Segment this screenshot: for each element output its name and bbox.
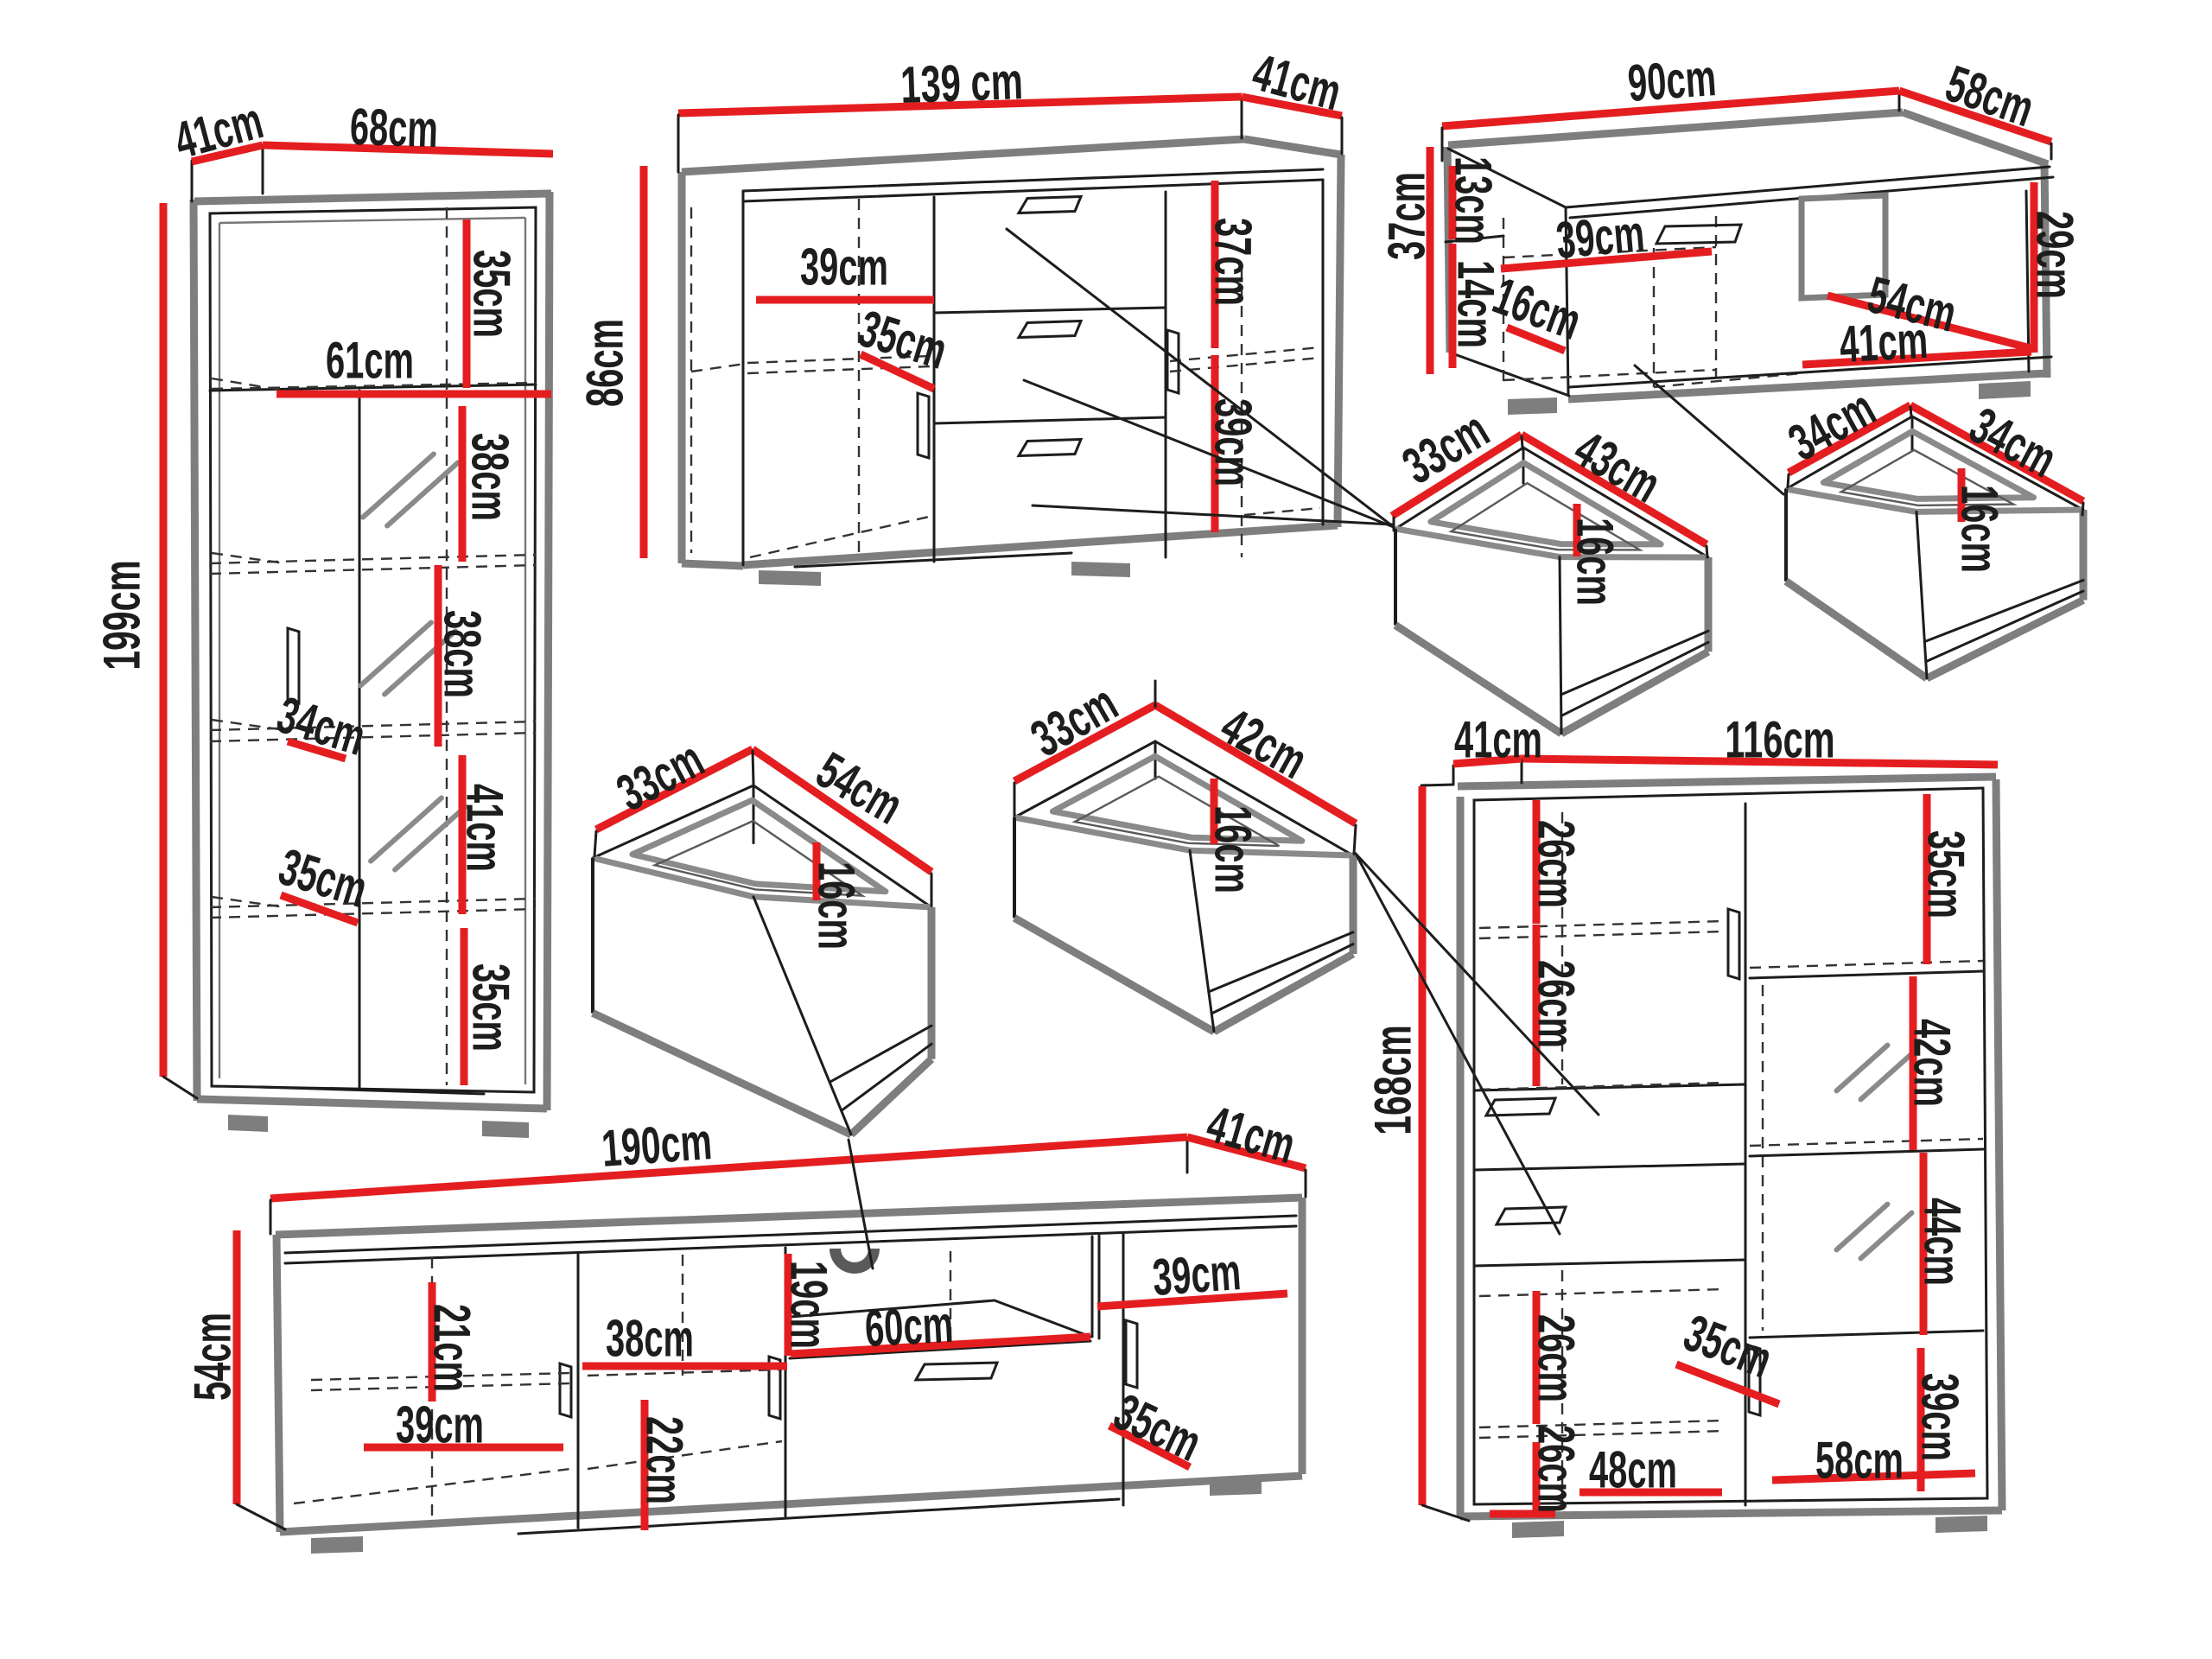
svg-text:41cm: 41cm bbox=[456, 784, 514, 872]
svg-text:39cm: 39cm bbox=[1205, 398, 1262, 486]
svg-text:39cm: 39cm bbox=[396, 1396, 484, 1454]
svg-text:54cm: 54cm bbox=[184, 1313, 242, 1401]
svg-text:58cm: 58cm bbox=[1815, 1432, 1904, 1490]
svg-text:39cm: 39cm bbox=[800, 238, 888, 296]
svg-text:116cm: 116cm bbox=[1725, 711, 1835, 769]
svg-text:26cm: 26cm bbox=[1528, 820, 1586, 908]
svg-text:48cm: 48cm bbox=[1589, 1441, 1677, 1499]
svg-text:199cm: 199cm bbox=[93, 560, 151, 671]
svg-text:68cm: 68cm bbox=[349, 98, 439, 159]
svg-text:26cm: 26cm bbox=[1528, 1425, 1586, 1513]
svg-text:39cm: 39cm bbox=[1911, 1373, 1969, 1461]
svg-text:37cm: 37cm bbox=[1378, 172, 1436, 260]
svg-text:44cm: 44cm bbox=[1914, 1198, 1972, 1286]
svg-text:38cm: 38cm bbox=[461, 433, 519, 521]
svg-text:41cm: 41cm bbox=[1454, 711, 1542, 769]
svg-text:168cm: 168cm bbox=[1364, 1025, 1422, 1135]
svg-text:26cm: 26cm bbox=[1528, 1314, 1586, 1402]
svg-text:37cm: 37cm bbox=[1205, 218, 1262, 306]
svg-text:22cm: 22cm bbox=[636, 1416, 694, 1504]
svg-text:35cm: 35cm bbox=[1917, 830, 1975, 918]
svg-text:60cm: 60cm bbox=[863, 1295, 954, 1357]
svg-text:35cm: 35cm bbox=[462, 963, 520, 1052]
svg-text:13cm: 13cm bbox=[1445, 156, 1503, 245]
svg-text:29cm: 29cm bbox=[2026, 211, 2084, 299]
svg-text:16cm: 16cm bbox=[808, 861, 866, 950]
svg-text:61cm: 61cm bbox=[326, 332, 414, 390]
svg-text:19cm: 19cm bbox=[780, 1261, 838, 1349]
svg-text:41cm: 41cm bbox=[1838, 311, 1929, 373]
svg-text:90cm: 90cm bbox=[1626, 48, 1718, 112]
svg-text:38cm: 38cm bbox=[606, 1310, 694, 1368]
svg-text:16cm: 16cm bbox=[1205, 805, 1262, 893]
svg-text:42cm: 42cm bbox=[1904, 1019, 1961, 1107]
svg-text:39cm: 39cm bbox=[1554, 204, 1646, 270]
svg-text:190cm: 190cm bbox=[600, 1112, 714, 1178]
svg-text:35cm: 35cm bbox=[463, 250, 521, 338]
svg-text:86cm: 86cm bbox=[576, 319, 634, 407]
svg-text:139 cm: 139 cm bbox=[899, 52, 1024, 114]
svg-text:26cm: 26cm bbox=[1528, 960, 1586, 1048]
svg-text:38cm: 38cm bbox=[434, 610, 492, 698]
svg-text:16cm: 16cm bbox=[1567, 518, 1624, 606]
svg-text:39cm: 39cm bbox=[1151, 1243, 1243, 1306]
svg-text:16cm: 16cm bbox=[1951, 485, 2009, 573]
svg-text:21cm: 21cm bbox=[423, 1304, 481, 1392]
